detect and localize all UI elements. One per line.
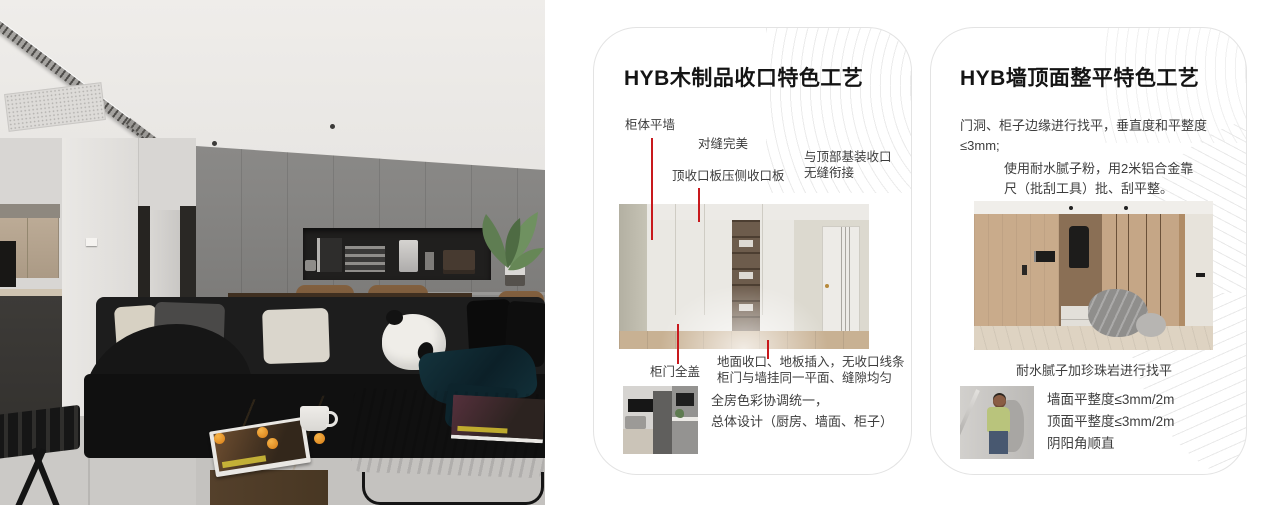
wardrobe-photo <box>974 201 1213 350</box>
coffee-cup <box>305 260 316 271</box>
orange-fruit <box>314 433 325 444</box>
light-switch <box>86 238 97 246</box>
annotation-full-cover-door: 柜门全盖 <box>650 364 700 380</box>
annotation-line <box>651 138 653 240</box>
door-handle <box>1022 265 1027 275</box>
hanging-coat <box>1069 226 1089 268</box>
cup-rack <box>345 246 385 272</box>
ceiling-spotlight <box>1069 206 1073 210</box>
gray-pouf <box>1136 313 1166 337</box>
annotation-perfect-seam: 对缝完美 <box>698 136 748 152</box>
kitchen-appliance <box>0 241 16 287</box>
thumb-sofa <box>625 416 646 429</box>
card-wood-finishing: HYB木制品收口特色工艺 柜体平墙 对缝完美 顶收口板压侧收口板 与顶部基装收口… <box>593 27 912 475</box>
magazine-title-mark <box>457 426 507 434</box>
annotation-line <box>767 340 769 359</box>
card-title: HYB墙顶面整平特色工艺 <box>960 62 1199 92</box>
kitchen-countertop <box>0 289 62 296</box>
ceiling-spotlight <box>212 141 217 146</box>
annotation-cabinet-flush-wall: 柜体平墙 <box>625 117 675 133</box>
annotation-floor-joint-line1: 地面收口、地板插入，无收口线条 <box>717 354 905 370</box>
panda-ear <box>386 310 403 325</box>
aluminum-ruler <box>960 389 980 456</box>
ceiling-ac-vent-panel <box>4 82 106 132</box>
annotation-top-trim-board: 顶收口板压侧收口板 <box>672 168 785 184</box>
espresso-machine <box>317 238 342 272</box>
cabinet-render-image <box>619 204 869 349</box>
wood-floor <box>974 326 1213 350</box>
spec-ceiling-flatness: 顶面平整度≤3mm/2m <box>1047 411 1174 434</box>
magazine <box>451 395 545 444</box>
kitchen-cabinet-shadow <box>0 204 60 218</box>
coffee-maker <box>399 240 418 272</box>
orange-fruit <box>267 438 278 449</box>
annotation-ceiling-joint-line2: 无缝衔接 <box>804 165 854 181</box>
summary-line2: 总体设计（厨房、墙面、柜子） <box>711 414 893 430</box>
coffee-table-metal-frame <box>362 472 544 505</box>
thumb-countertop <box>672 417 698 421</box>
shelf-decor <box>739 272 753 279</box>
worker-shirt <box>987 407 1010 432</box>
card-wall-leveling: HYB墙顶面整平特色工艺 门洞、柜子边缘进行找平，垂直度和平整度≤3mm; 使用… <box>930 27 1247 475</box>
living-room-photo <box>0 0 545 505</box>
grinder <box>425 252 434 270</box>
annotation-ceiling-joint-line1: 与顶部基装收口 <box>804 149 892 165</box>
leveling-paragraph-1: 门洞、柜子边缘进行找平，垂直度和平整度≤3mm; <box>960 116 1238 155</box>
thumb-plant <box>675 409 684 418</box>
spec-corners-straight: 阴阳角顺直 <box>1047 433 1115 456</box>
render-ceiling <box>619 204 869 220</box>
worker-jeans <box>989 431 1008 454</box>
cabinet-seam <box>27 218 28 278</box>
worker-thumbnail <box>960 386 1034 459</box>
ceiling-spotlight <box>330 124 335 129</box>
annotation-line <box>698 188 700 222</box>
card-title: HYB木制品收口特色工艺 <box>624 62 863 92</box>
annotation-line <box>677 324 679 364</box>
summary-line1: 全房色彩协调统一， <box>711 393 828 409</box>
leveling-paragraph-2: 使用耐水腻子粉，用2米铝合金靠尺（批刮工具）批、刮平整。 <box>1004 159 1196 198</box>
gray-partition <box>653 391 672 454</box>
tv-screen <box>628 399 655 412</box>
putty-caption: 耐水腻子加珍珠岩进行找平 <box>1016 360 1172 379</box>
photo-ceiling <box>974 201 1213 214</box>
ceiling-spotlight <box>1124 206 1128 210</box>
built-in-appliance <box>676 393 694 406</box>
orange-fruit <box>257 427 268 438</box>
white-pillow <box>262 308 330 364</box>
interior-thumbnail <box>623 386 698 454</box>
orange-fruit <box>214 433 225 444</box>
spec-wall-flatness: 墙面平整度≤3mm/2m <box>1047 389 1174 412</box>
page: HYB木制品收口特色工艺 柜体平墙 对缝完美 顶收口板压侧收口板 与顶部基装收口… <box>0 0 1280 505</box>
render-side-wall <box>619 204 647 349</box>
annotation-floor-joint-line2: 柜门与墙挂同一平面、缝隙均匀 <box>717 370 892 386</box>
door-handle <box>1196 273 1205 277</box>
light-glare <box>659 284 829 349</box>
white-mug <box>300 406 329 431</box>
shelf-decor <box>739 240 753 247</box>
smart-control-panel <box>1034 251 1055 262</box>
potted-plant <box>458 198 545 293</box>
